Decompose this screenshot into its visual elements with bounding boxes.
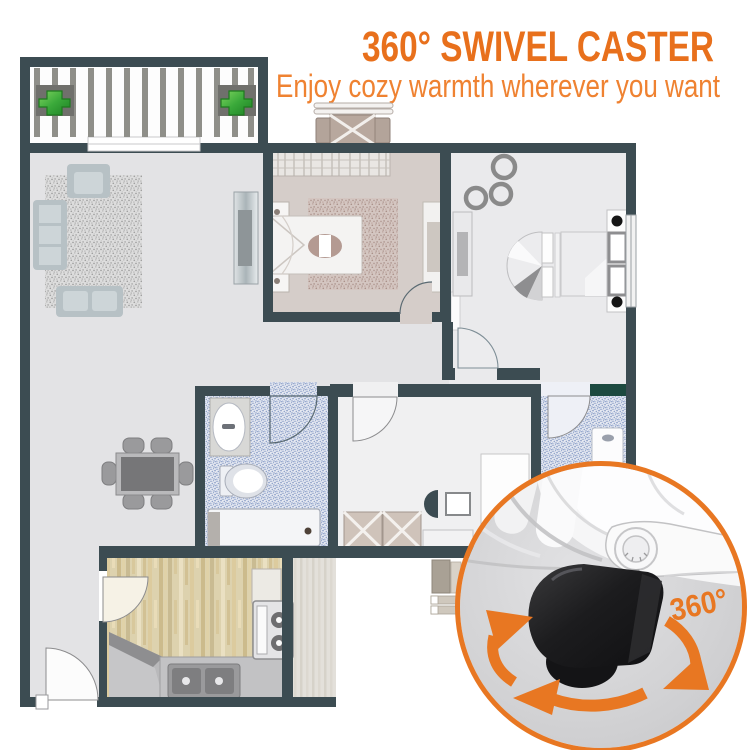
svg-text:Enjoy cozy warmth wherever you: Enjoy cozy warmth wherever you want [276, 68, 720, 104]
svg-text:360° SWIVEL CASTER: 360° SWIVEL CASTER [362, 23, 714, 71]
